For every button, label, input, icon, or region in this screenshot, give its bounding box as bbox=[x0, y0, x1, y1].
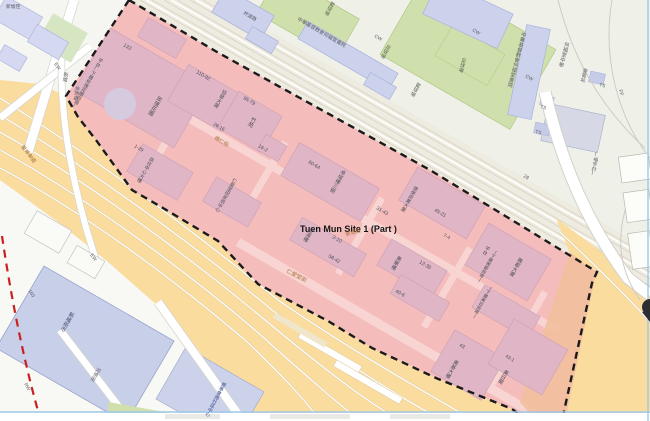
rose-garden-courtyard bbox=[104, 88, 136, 120]
map-canvas: Tuen Mun Site 1 (Part ) 133 平台(下層玫瑰花園商場)… bbox=[0, 0, 650, 421]
label-san-hui-path: 新墟徑 bbox=[6, 3, 21, 10]
map-plan-extract: Tuen Mun Site 1 (Part ) 133 平台(下層玫瑰花園商場)… bbox=[0, 0, 650, 421]
